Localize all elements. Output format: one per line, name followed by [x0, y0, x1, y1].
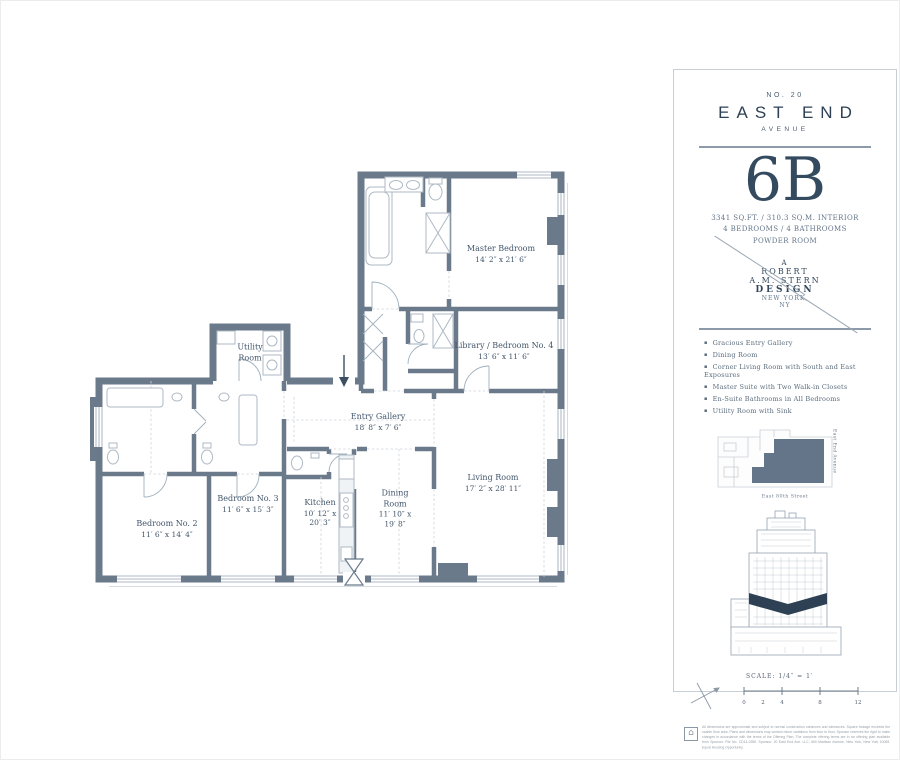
building-name: EAST END [674, 103, 896, 123]
svg-text:12: 12 [855, 700, 862, 706]
feature-item: Master Suite with Two Walk-in Closets [704, 383, 882, 391]
room-label-living-room: Living Room17′ 2″ x 28′ 11″ [465, 473, 521, 493]
equal-housing-icon: ⌂ [684, 727, 698, 741]
entry-arrow [339, 355, 349, 387]
room-label-kitchen: Kitchen10′ 12″ x 20′ 3″ [300, 498, 340, 528]
scale-label: SCALE: 1/4″ = 1′ [746, 673, 813, 680]
room-label-bedroom-2: Bedroom No. 211′ 6″ x 14′ 4″ [136, 519, 197, 539]
room-label-master-bedroom: Master Bedroom14′ 2″ x 21′ 6″ [467, 244, 535, 264]
scale-section: SCALE: 1/4″ = 1′ 0 2 4 8 12 [674, 673, 896, 719]
svg-text:4: 4 [780, 700, 784, 706]
info-panel: NO. 20 EAST END AVENUE 6B 3341 SQ.FT. / … [673, 69, 897, 692]
compass-icon [688, 679, 722, 713]
building-illustration [705, 509, 865, 667]
room-label-library: Library / Bedroom No. 413′ 6″ x 11′ 6″ [455, 341, 554, 361]
svg-text:8: 8 [818, 700, 822, 706]
building-number: NO. 20 [674, 92, 896, 99]
unit-number: 6B [674, 150, 896, 211]
designer-mark: A ROBERT A.M. STERN DESIGN NEW YORK, NY [674, 259, 896, 315]
disclaimer-text: All dimensions are approximate and subje… [702, 725, 890, 751]
floorplan-drawing [89, 159, 669, 611]
unit-specs: 3341 SQ.FT. / 310.3 SQ.M. INTERIOR 4 BED… [674, 213, 896, 247]
feature-list: Gracious Entry Gallery Dining Room Corne… [674, 339, 896, 415]
feature-item: Utility Room with Sink [704, 407, 882, 415]
svg-text:2: 2 [761, 700, 765, 706]
brochure-page: Master Bedroom14′ 2″ x 21′ 6″ Library / … [0, 0, 900, 760]
feature-item: En-Suite Bathrooms in All Bedrooms [704, 395, 882, 403]
room-label-dining-room: Dining Room11′ 10″ x 19′ 8″ [375, 489, 415, 530]
feature-item: Dining Room [704, 351, 882, 359]
scale-bar: 0 2 4 8 12 [736, 683, 866, 713]
building-avenue: AVENUE [674, 126, 896, 133]
keyplan: East End Avenue East 80th Street [674, 421, 896, 507]
divider-features [699, 328, 871, 330]
svg-text:0: 0 [742, 700, 746, 706]
keyplan-street-bottom: East 80th Street [696, 493, 874, 499]
room-label-utility: Utility Room [230, 342, 270, 363]
feature-item: Gracious Entry Gallery [704, 339, 882, 347]
room-label-entry-gallery: Entry Gallery18′ 8″ x 7′ 6″ [351, 412, 405, 432]
disclaimer-section: ⌂ All dimensions are approximate and sub… [682, 725, 888, 755]
room-label-bedroom-3: Bedroom No. 311′ 6″ x 15′ 3″ [217, 494, 278, 514]
keyplan-street-right: East End Avenue [832, 429, 837, 473]
feature-item: Corner Living Room with South and East E… [704, 363, 882, 379]
